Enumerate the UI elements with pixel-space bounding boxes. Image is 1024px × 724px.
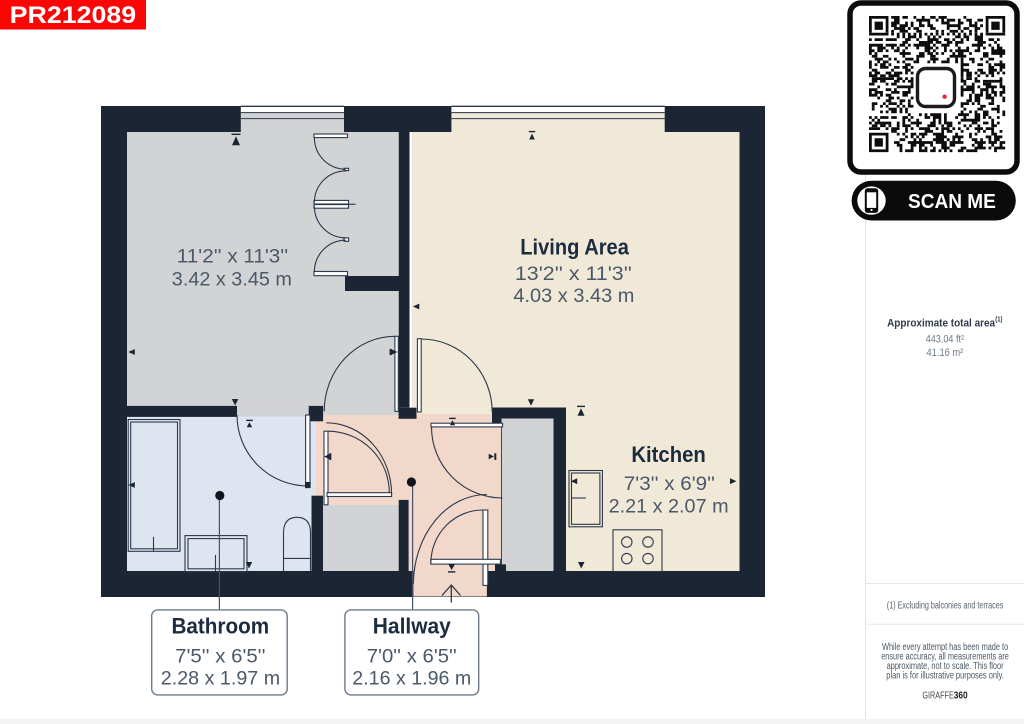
svg-text:2.28 x 1.97 m: 2.28 x 1.97 m: [161, 668, 280, 690]
svg-text:Hallway: Hallway: [373, 613, 452, 638]
svg-text:360: 360: [954, 690, 968, 701]
svg-text:7'3'' x 6'9'': 7'3'' x 6'9'': [624, 473, 715, 495]
svg-text:7'0'' x 6'5'': 7'0'' x 6'5'': [367, 645, 457, 667]
svg-text:443.04 ft²: 443.04 ft²: [926, 334, 965, 346]
svg-text:plan is for illustrative purpo: plan is for illustrative purposes only.: [886, 671, 1004, 682]
svg-text:41.16 m²: 41.16 m²: [927, 347, 964, 359]
svg-text:Kitchen: Kitchen: [631, 442, 705, 467]
svg-text:4.03 x 3.43 m: 4.03 x 3.43 m: [513, 285, 634, 307]
svg-text:3.42 x 3.45 m: 3.42 x 3.45 m: [172, 269, 292, 291]
svg-text:2.16 x 1.96 m: 2.16 x 1.96 m: [352, 668, 471, 690]
svg-text:(1): (1): [995, 315, 1003, 324]
svg-text:SCAN ME: SCAN ME: [908, 190, 996, 213]
svg-text:Bathroom: Bathroom: [172, 613, 270, 638]
svg-text:11'2'' x 11'3'': 11'2'' x 11'3'': [177, 246, 288, 268]
svg-text:(1) Excluding balconies and te: (1) Excluding balconies and terraces: [887, 601, 1004, 612]
svg-text:7'5'' x 6'5'': 7'5'' x 6'5'': [175, 645, 265, 667]
svg-text:Approximate total area: Approximate total area: [887, 318, 996, 330]
svg-text:GIRAFFE: GIRAFFE: [922, 690, 954, 701]
svg-text:13'2'' x 11'3'': 13'2'' x 11'3'': [515, 263, 632, 285]
svg-text:2.21 x 2.07 m: 2.21 x 2.07 m: [609, 496, 729, 518]
svg-text:PR212089: PR212089: [10, 2, 137, 29]
svg-text:Living Area: Living Area: [520, 235, 629, 260]
